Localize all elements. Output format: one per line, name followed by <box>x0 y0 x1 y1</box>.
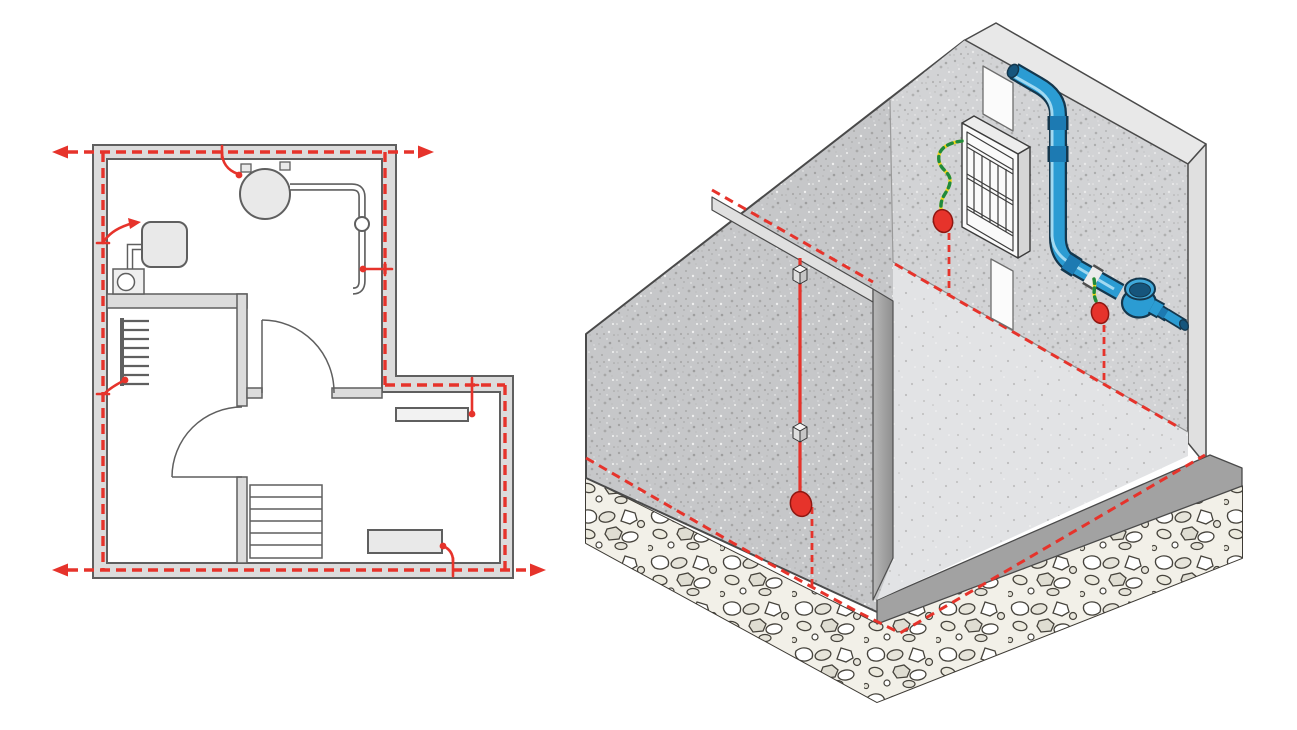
door-swing-upper <box>262 320 334 393</box>
arrow-top-right <box>418 146 434 159</box>
radiator-left <box>122 318 149 386</box>
arrow-bottom-right <box>530 564 546 577</box>
board-side-face <box>1018 147 1030 258</box>
conductor-clamp-upper <box>793 265 807 284</box>
radiator-right <box>396 408 468 421</box>
conductor-clamp-lower <box>793 423 807 442</box>
electric-appliance <box>368 530 442 553</box>
illustration-canvas <box>0 0 1297 730</box>
interior-walls <box>107 294 382 563</box>
staircase <box>250 485 322 558</box>
arrow-top-left <box>52 146 68 159</box>
water-heater <box>240 162 290 219</box>
water-heater-tank <box>240 169 290 219</box>
bonding-wire-water-pipe <box>1094 279 1096 301</box>
arrow-bottom-left <box>52 564 68 577</box>
wall-boiler <box>142 222 187 267</box>
right-wall-end-band <box>1188 144 1206 465</box>
water-pipe-run <box>290 187 369 291</box>
partition-end-face <box>873 289 893 600</box>
pump-dial <box>118 274 135 291</box>
floor-plan-panel <box>52 145 546 578</box>
wall-boiler-unit <box>113 222 187 294</box>
door-swing-lower <box>172 407 242 477</box>
pipe-valve <box>355 217 369 231</box>
duct-below-panel <box>991 259 1013 330</box>
isometric-basement-panel <box>586 23 1242 702</box>
